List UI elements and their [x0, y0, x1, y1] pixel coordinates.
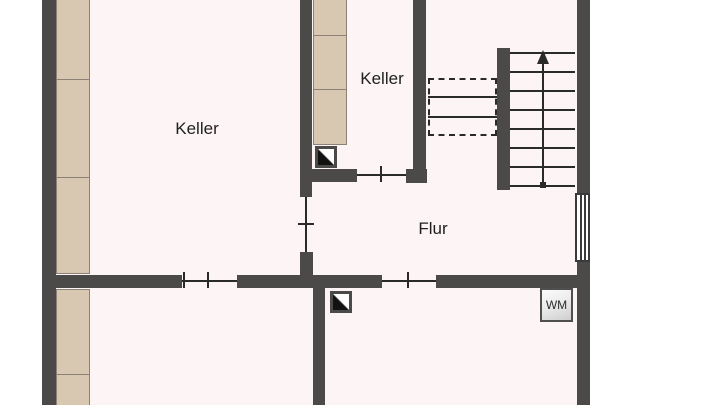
room-label-flur: Flur [383, 219, 483, 239]
chimney-icon [315, 146, 337, 168]
wall-keller-divider [300, 0, 312, 197]
window-mullion [584, 195, 586, 260]
door-tick [298, 223, 314, 225]
wall-west-exterior [42, 0, 56, 405]
stair-tread-line [510, 90, 575, 92]
chimney-icon [330, 291, 352, 313]
stair-flight-above-outline [428, 78, 497, 136]
cabinet [56, 79, 90, 178]
wall-east-exterior-top [577, 0, 590, 193]
door-tick [407, 272, 409, 288]
stair-tread-line [510, 147, 575, 149]
wall-midkeller-south-left [311, 169, 357, 182]
cabinet [313, 89, 347, 145]
wall-south-segment-1 [42, 275, 182, 288]
door-tick [380, 166, 382, 182]
washing-machine-label: WM [546, 298, 567, 312]
cabinet [56, 374, 90, 405]
door-opening-line [382, 280, 436, 282]
stair-landing-line [428, 96, 497, 98]
stair-tread-line [510, 128, 575, 130]
cabinet [56, 0, 90, 80]
cabinet [56, 177, 90, 274]
stair-tread-line [510, 52, 575, 54]
door-tick [207, 272, 209, 288]
stair-tread-line [510, 109, 575, 111]
wall-bottom-rooms-divider [313, 288, 325, 405]
wall-south-segment-3 [436, 275, 590, 288]
cabinet [56, 289, 90, 375]
stair-tread-line [510, 166, 575, 168]
stair-tread-line [510, 185, 575, 187]
room-label-keller-middle: Keller [332, 69, 432, 89]
stair-landing-line [428, 116, 497, 118]
window-mullion [580, 195, 582, 260]
washing-machine-box: WM [540, 288, 573, 322]
stair-tread-line [510, 71, 575, 73]
door-opening-line [182, 280, 237, 282]
wall-stair-west [497, 48, 510, 190]
wall-midkeller-south-right [406, 169, 427, 183]
floor-plan: Keller Keller Flur WM [0, 0, 720, 405]
door-tick [183, 272, 185, 288]
wall-flur-west-stub [300, 252, 313, 275]
wall-south-segment-2 [237, 275, 382, 288]
cabinet [313, 0, 347, 36]
window-symbol [575, 193, 590, 262]
room-label-keller-left: Keller [147, 119, 247, 139]
